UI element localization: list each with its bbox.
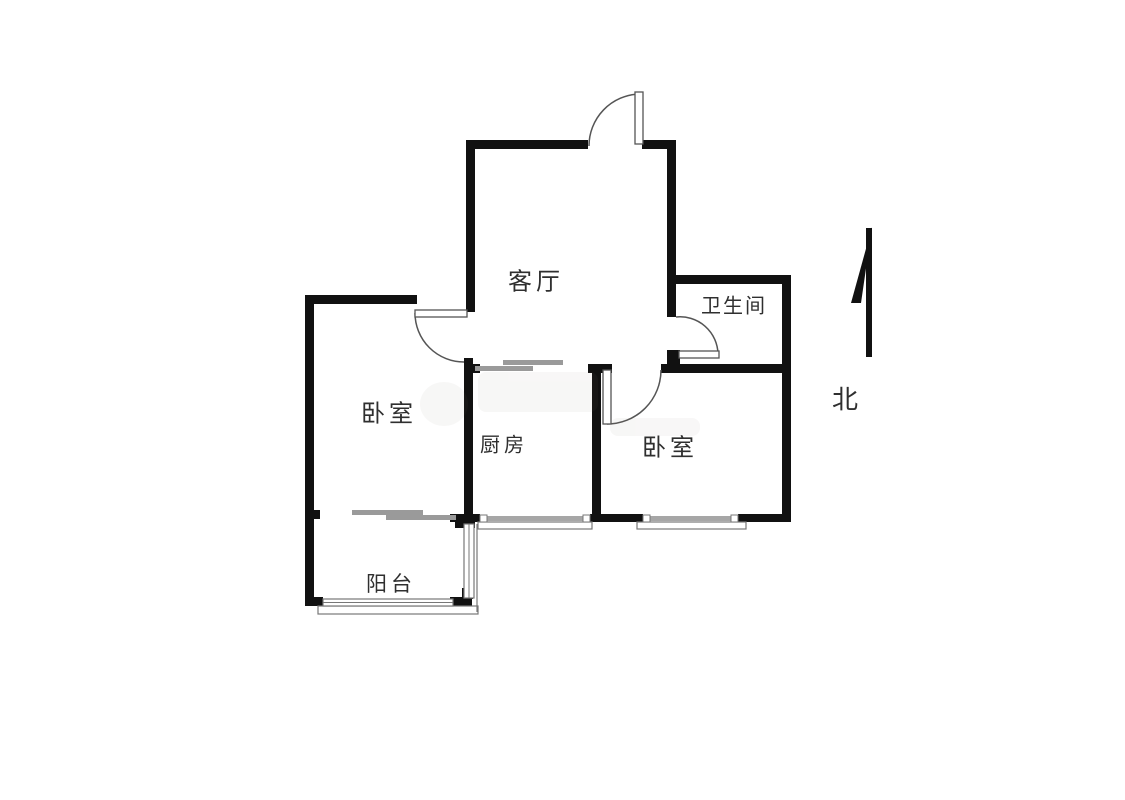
kitchen-window-icon [478, 515, 592, 529]
balcony-sliding-door-icon [352, 510, 456, 520]
bedroom-left-label: 卧室 [361, 394, 417, 429]
north-arrow-icon [851, 227, 872, 357]
bathroom-door-icon [676, 317, 719, 358]
floorplan-canvas: 客厅 卫生间 卧室 厨房 卧室 阳台 北 [0, 0, 1125, 800]
living-room-label: 客厅 [508, 262, 564, 297]
balcony-label: 阳台 [366, 568, 416, 598]
entrance-door-icon [589, 92, 643, 146]
bathroom-label: 卫生间 [701, 290, 767, 319]
north-label: 北 [832, 380, 858, 417]
bedroom-right-window-icon [637, 515, 746, 529]
kitchen-label: 厨房 [480, 429, 528, 458]
bedroom-left-door-icon [415, 310, 467, 362]
bedroom-right-label: 卧室 [642, 428, 698, 463]
